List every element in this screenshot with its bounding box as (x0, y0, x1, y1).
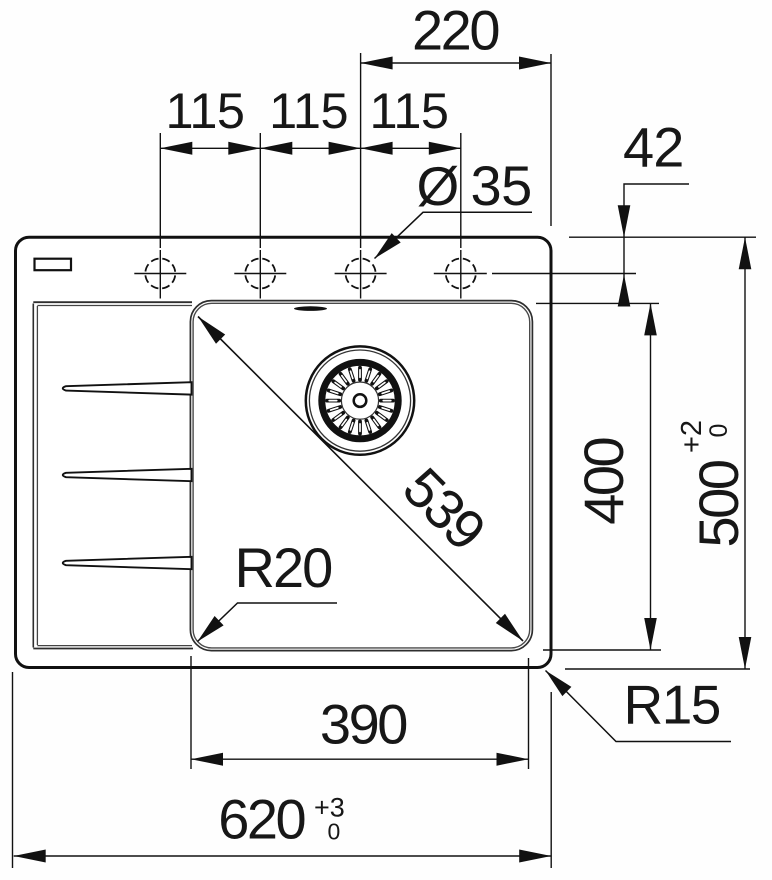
svg-text:42: 42 (623, 115, 683, 178)
svg-text:Ø: Ø (417, 155, 460, 217)
svg-text:220: 220 (412, 0, 498, 62)
svg-text:0: 0 (705, 424, 733, 438)
svg-text:115: 115 (165, 82, 244, 139)
svg-text:R15: R15 (624, 674, 720, 736)
svg-text:+2: +2 (676, 420, 708, 453)
svg-text:0: 0 (328, 819, 341, 845)
svg-text:620: 620 (218, 788, 304, 851)
svg-text:400: 400 (572, 438, 635, 524)
svg-text:R20: R20 (235, 536, 332, 599)
svg-text:115: 115 (369, 82, 448, 139)
svg-text:390: 390 (320, 693, 406, 756)
svg-text:35: 35 (471, 154, 532, 217)
svg-text:500: 500 (687, 461, 750, 547)
svg-text:115: 115 (269, 82, 348, 139)
